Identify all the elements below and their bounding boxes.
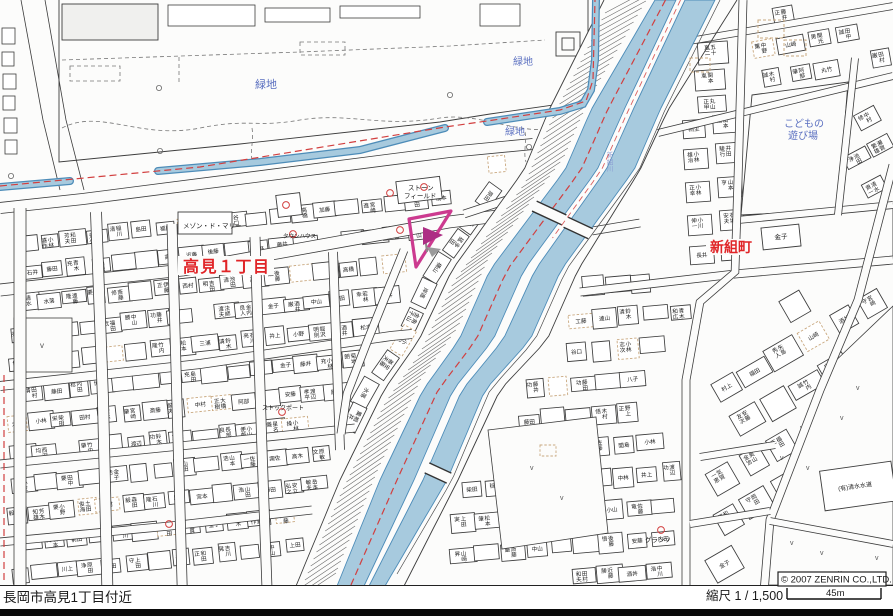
svg-text:緑地: 緑地	[513, 55, 533, 68]
svg-text:正: 正	[618, 405, 625, 412]
svg-text:ストックポート: ストックポート	[262, 404, 304, 412]
svg-text:v: v	[875, 555, 879, 562]
svg-text:緑地: 緑地	[255, 77, 277, 91]
svg-text:v: v	[840, 415, 844, 422]
svg-text:メゾン・ド・マリー: メゾン・ド・マリー	[183, 222, 242, 230]
svg-text:一: 一	[243, 457, 250, 464]
svg-text:要: 要	[53, 504, 60, 512]
svg-text:45m: 45m	[826, 588, 845, 599]
svg-text:v: v	[806, 465, 810, 472]
svg-text:正: 正	[157, 282, 164, 290]
svg-text:v: v	[790, 540, 794, 547]
svg-text:正: 正	[194, 551, 201, 559]
svg-text:縮尺 1 / 1,500: 縮尺 1 / 1,500	[706, 588, 783, 603]
svg-text:こどもの: こどもの	[784, 118, 824, 130]
svg-text:昇: 昇	[454, 551, 461, 558]
svg-text:v: v	[530, 465, 534, 472]
svg-text:© 2007 ZENRIN CO.,LTD.: © 2007 ZENRIN CO.,LTD.	[781, 575, 892, 586]
svg-text:八子: 八子	[627, 376, 639, 384]
svg-text:遊び場: 遊び場	[788, 129, 818, 142]
svg-text:要: 要	[87, 289, 94, 297]
svg-text:v: v	[820, 550, 824, 557]
svg-text:明: 明	[202, 280, 209, 288]
svg-text:高見１丁目: 高見１丁目	[183, 257, 271, 276]
svg-text:新組川: 新組川	[607, 150, 614, 173]
svg-text:v: v	[856, 385, 860, 392]
svg-text:グランソ: グランソ	[645, 535, 671, 544]
svg-text:幸: 幸	[356, 291, 363, 299]
svg-text:ストーン: ストーン	[408, 184, 434, 192]
svg-text:晃: 晃	[218, 545, 225, 553]
svg-text:新組町: 新組町	[710, 239, 752, 255]
svg-text:男: 男	[810, 33, 817, 41]
svg-text:フィールド: フィールド	[404, 192, 436, 200]
svg-text:タウンハウス: タウンハウス	[283, 232, 316, 240]
svg-text:v: v	[780, 455, 784, 462]
svg-text:要: 要	[61, 475, 68, 483]
svg-text:緑地: 緑地	[505, 125, 525, 138]
svg-text:v: v	[40, 341, 44, 350]
svg-text:v: v	[560, 495, 564, 502]
svg-text:長岡市高見1丁目付近: 長岡市高見1丁目付近	[3, 589, 133, 605]
